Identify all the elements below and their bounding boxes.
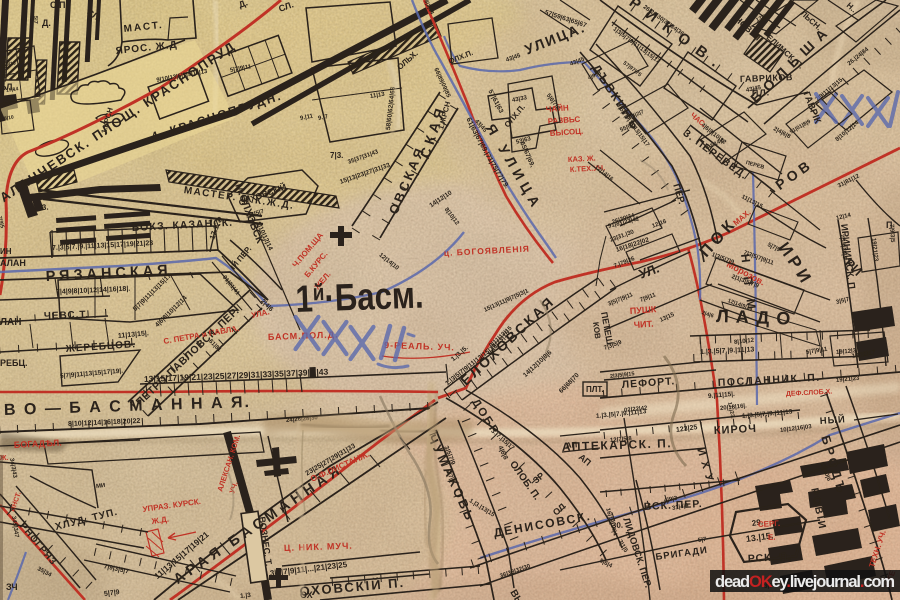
svg-text:МИ: МИ: [96, 483, 106, 490]
svg-text:Е.: Е.: [768, 533, 776, 542]
svg-text:АП: АП: [566, 440, 578, 450]
svg-text:30.: 30.: [612, 521, 623, 530]
svg-text:3.: 3.: [42, 203, 49, 212]
svg-text:ЛАН: ЛАН: [0, 317, 21, 328]
svg-text:ЧЕВС.Т.: ЧЕВС.Т.: [44, 309, 90, 322]
svg-text:5|7: 5|7: [32, 16, 38, 24]
svg-text:Д.: Д.: [42, 18, 51, 28]
svg-text:КИРОЧ: КИРОЧ: [714, 423, 758, 437]
svg-text:deadOKey.livejournal.com: deadOKey.livejournal.com: [715, 573, 895, 591]
svg-text:7|3.: 7|3.: [330, 151, 343, 160]
svg-text:ИН: ИН: [0, 247, 12, 256]
svg-text:РЕБЦ.: РЕБЦ.: [0, 358, 28, 368]
svg-text:РСК. П.: РСК. П.: [748, 551, 793, 565]
svg-text:ПУШК: ПУШК: [629, 304, 657, 316]
svg-text:ЧИТ.: ЧИТ.: [633, 319, 653, 330]
svg-text:С.П.: С.П.: [50, 0, 68, 10]
svg-text:ЗЧ: ЗЧ: [6, 582, 18, 592]
svg-text:1.|3: 1.|3: [240, 592, 252, 600]
svg-text:ПЛТ.: ПЛТ.: [586, 385, 604, 394]
svg-text:НЫЙ: НЫЙ: [819, 413, 846, 427]
svg-text:КАЗ. Ж.: КАЗ. Ж.: [568, 154, 596, 164]
svg-text:АЛАН: АЛАН: [0, 258, 26, 268]
